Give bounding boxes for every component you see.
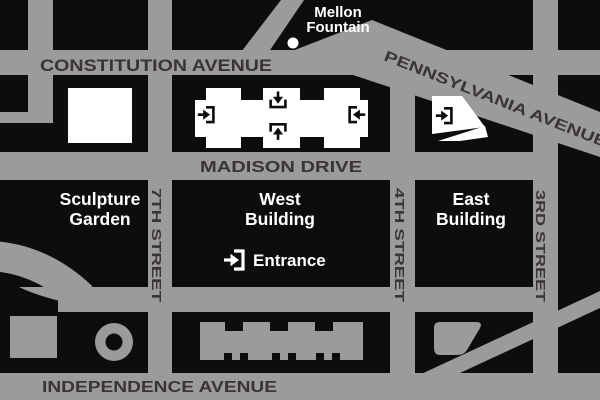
building-square-footprint [10, 316, 57, 358]
fourth-street-label: 4TH STREET [392, 188, 407, 302]
street-jefferson-drive [58, 287, 558, 312]
nga-area-map: CONSTITUTION AVENUE PENNSYLVANIA AVENUE … [0, 0, 600, 400]
third-street-label: 3RD STREET [533, 190, 548, 302]
mellon-fountain-label-line2: Fountain [306, 19, 369, 36]
building-ring-hole [106, 334, 123, 351]
independence-avenue-label: INDEPENDENCE AVENUE [42, 379, 277, 396]
fountain-dot [288, 38, 299, 49]
madison-drive-label: MADISON DRIVE [200, 159, 362, 176]
building-columned-footprint [200, 322, 363, 360]
sculpture-garden-label-line1: Sculpture [60, 189, 141, 209]
constitution-avenue-label: CONSTITUTION AVENUE [40, 56, 272, 75]
street-9th-stub [0, 112, 30, 123]
east-building-label-line1: East [453, 189, 490, 209]
west-building-label-line1: West [259, 189, 301, 209]
block-top-left [53, 0, 148, 50]
east-building-label-line2: Building [436, 209, 506, 229]
sculpture-garden-pavilion [68, 88, 132, 143]
entrance-label: Entrance [253, 251, 326, 270]
seventh-street-label: 7TH STREET [149, 188, 164, 302]
sculpture-garden-label-line2: Garden [69, 209, 130, 229]
block-top-right [558, 0, 600, 50]
street-9th-segment [28, 75, 53, 123]
block-top-far-left [0, 0, 28, 50]
west-building-label-line2: Building [245, 209, 315, 229]
